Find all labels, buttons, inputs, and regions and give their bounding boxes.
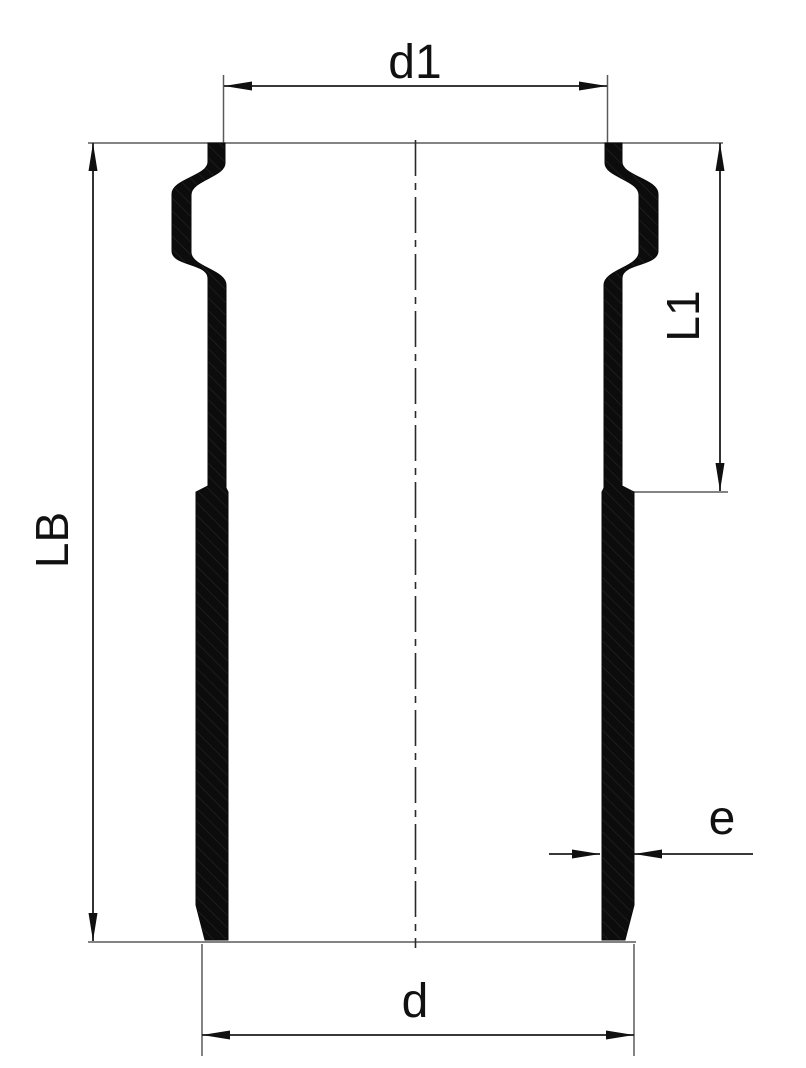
e-dimension-label: e (709, 792, 736, 845)
drawing-background (0, 0, 806, 1068)
d-dimension-label: d (402, 975, 429, 1028)
l1-dimension-label: L1 (657, 290, 709, 341)
technical-drawing-canvas: d1 LB L1 e d (0, 0, 806, 1068)
drawing-svg: d1 LB L1 e d (0, 0, 806, 1068)
lb-dimension-label: LB (26, 512, 78, 568)
d1-dimension-label: d1 (388, 36, 441, 89)
